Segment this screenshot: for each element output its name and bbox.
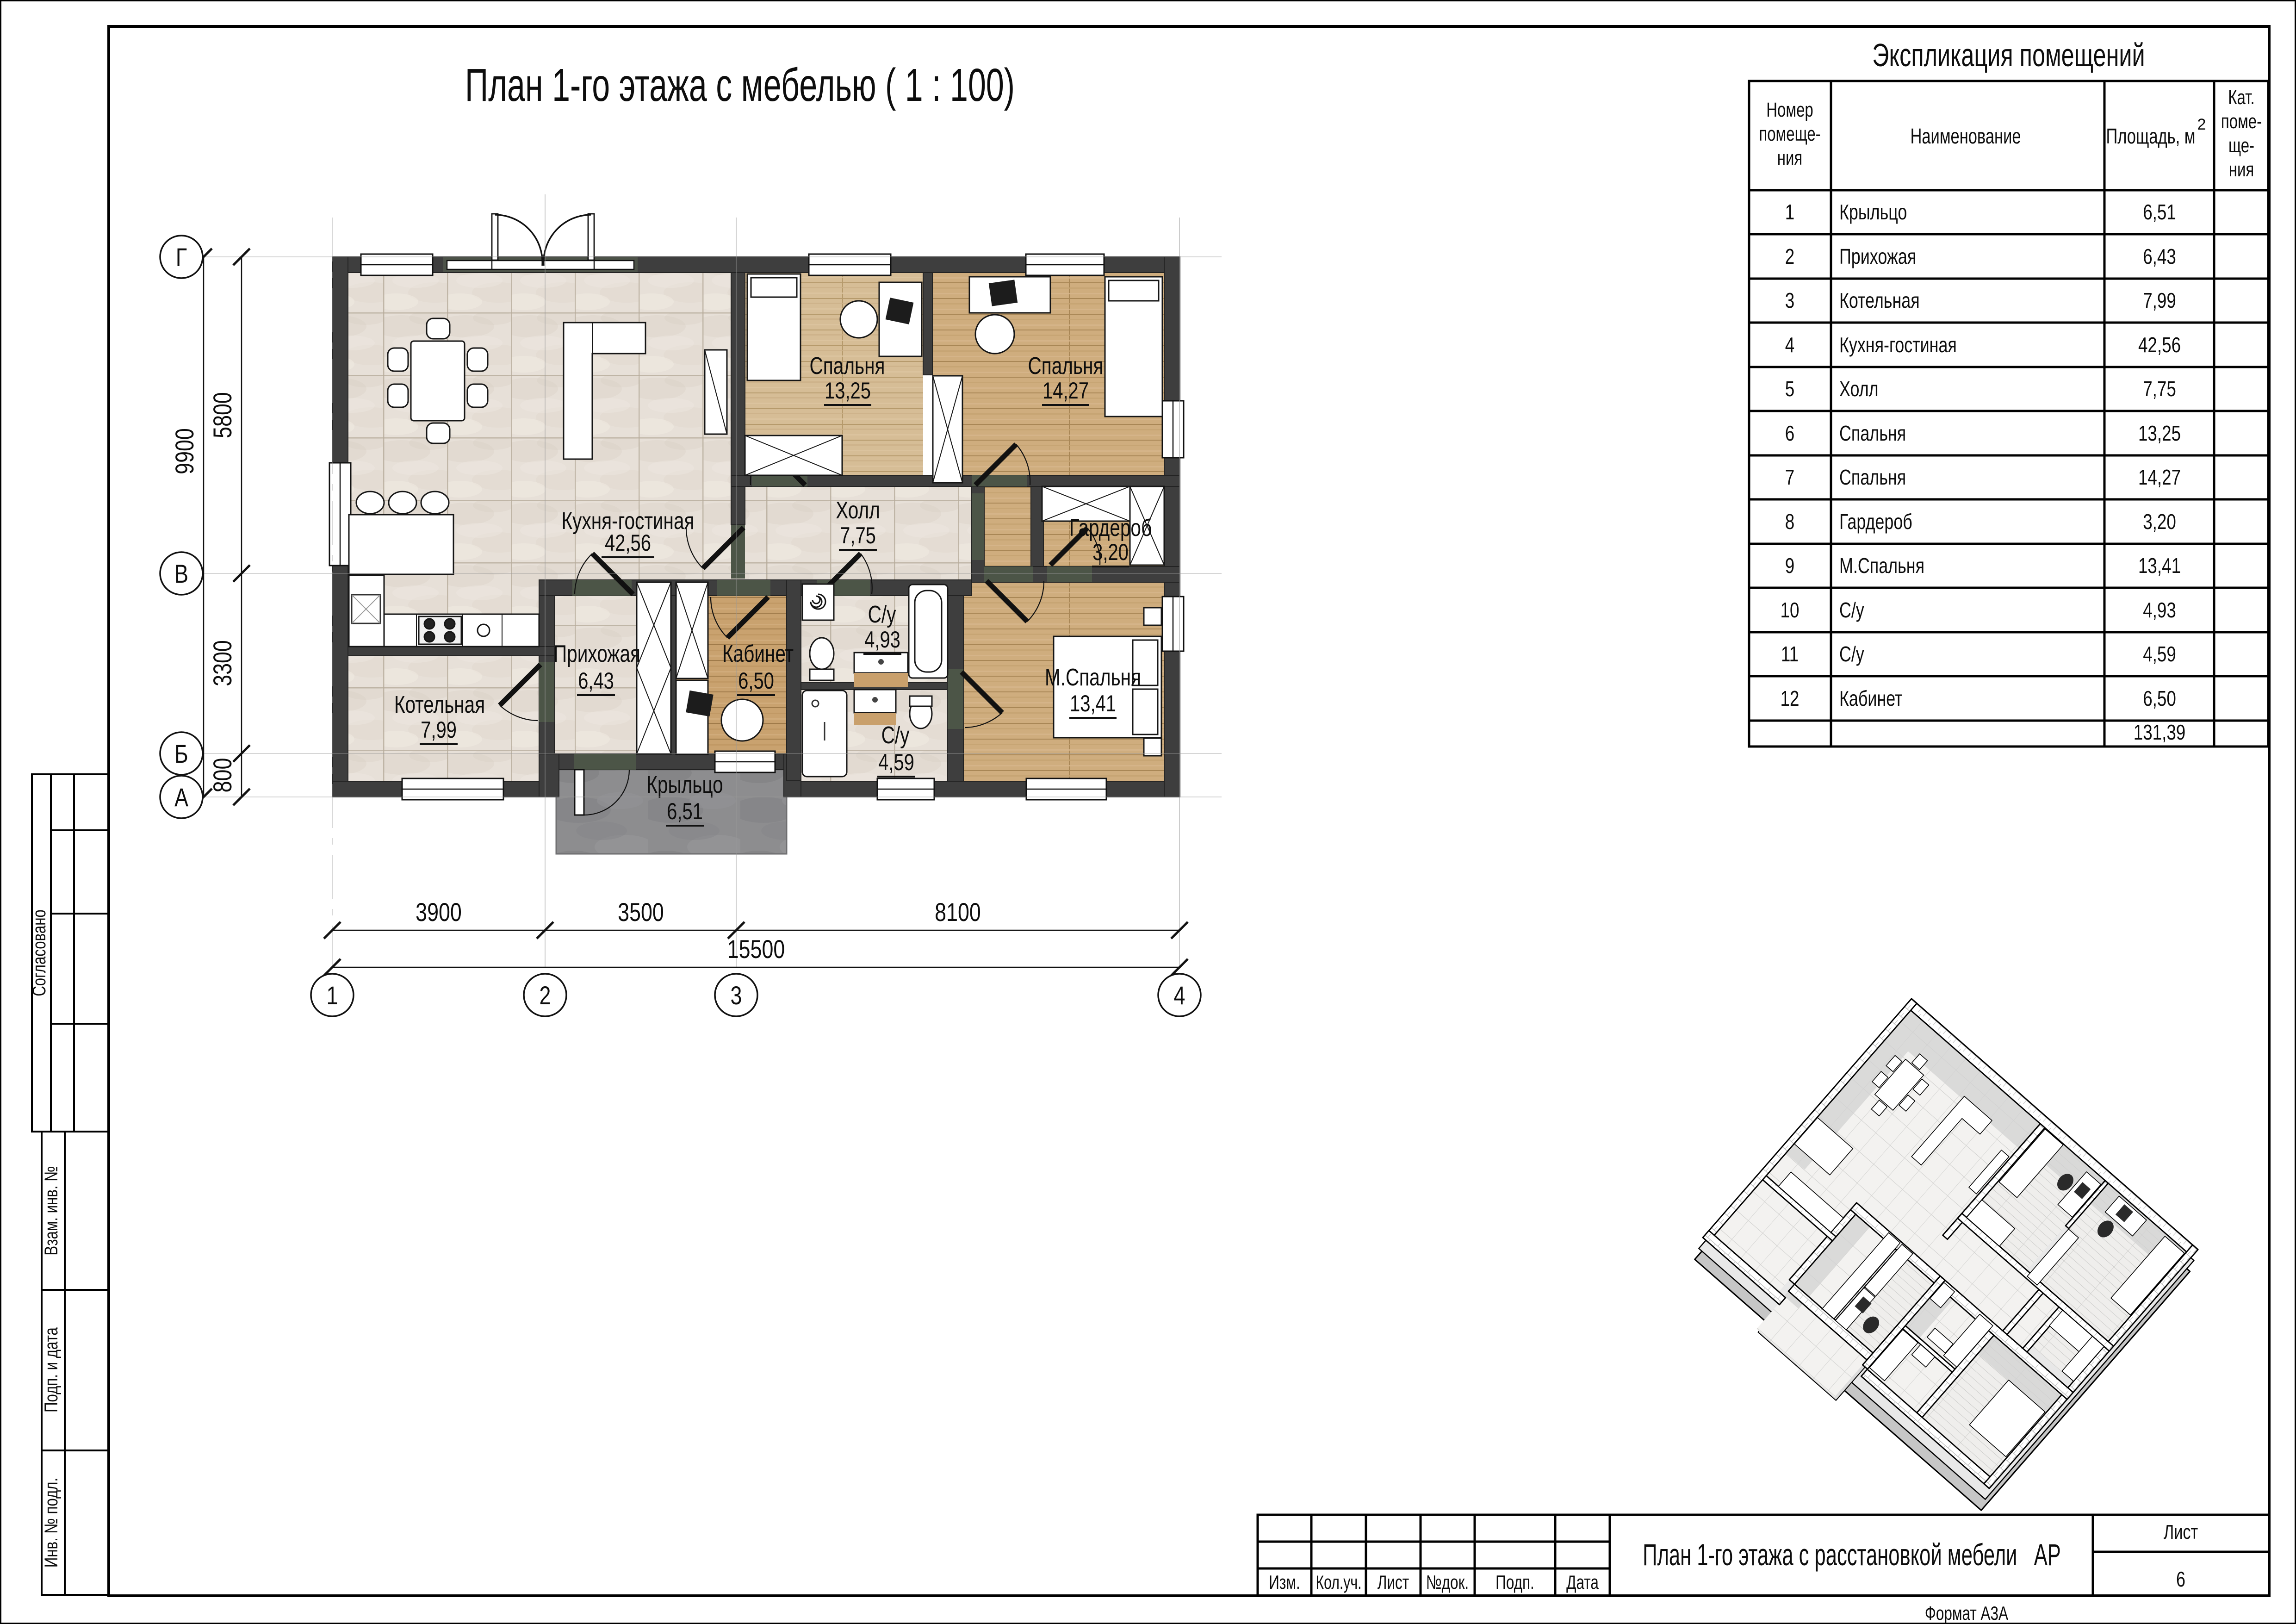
svg-text:7: 7	[1785, 465, 1794, 489]
svg-text:6: 6	[1785, 421, 1794, 445]
svg-text:3900: 3900	[416, 897, 462, 927]
svg-text:Взам. инв. №: Взам. инв. №	[41, 1166, 62, 1255]
svg-text:Кат.: Кат.	[2228, 87, 2254, 109]
svg-text:2: 2	[1785, 244, 1794, 268]
svg-text:6,50: 6,50	[2143, 686, 2176, 710]
svg-text:Лист: Лист	[1378, 1571, 1409, 1593]
svg-text:9900: 9900	[170, 428, 199, 474]
svg-text:Кабинет: Кабинет	[1839, 687, 1903, 710]
svg-text:М.Спальня: М.Спальня	[1839, 554, 1924, 578]
svg-text:Крыльцо: Крыльцо	[646, 771, 723, 798]
svg-text:6,51: 6,51	[2143, 200, 2176, 224]
svg-text:Согласовано: Согласовано	[29, 909, 50, 996]
svg-text:ще-: ще-	[2228, 135, 2254, 157]
svg-text:ния: ния	[1777, 147, 1803, 170]
svg-text:800: 800	[208, 758, 237, 793]
svg-text:С/у: С/у	[881, 722, 910, 748]
svg-text:6,43: 6,43	[578, 668, 614, 694]
svg-text:14,27: 14,27	[2138, 465, 2181, 489]
svg-text:Подп.: Подп.	[1496, 1571, 1534, 1593]
svg-text:Крыльцо: Крыльцо	[1839, 200, 1907, 224]
svg-text:5: 5	[1785, 377, 1794, 401]
svg-text:С/у: С/у	[868, 601, 896, 628]
svg-text:Холл: Холл	[1839, 377, 1879, 401]
svg-text:3,20: 3,20	[1092, 539, 1129, 565]
svg-text:4: 4	[1174, 981, 1185, 1010]
svg-text:6,50: 6,50	[738, 668, 774, 694]
svg-text:Экспликация помещений: Экспликация помещений	[1872, 37, 2145, 73]
svg-text:План 1-го этажа с расстановкой: План 1-го этажа с расстановкой мебели АР	[1643, 1537, 2061, 1572]
svg-text:В: В	[174, 559, 188, 588]
svg-text:2: 2	[540, 981, 551, 1010]
svg-text:42,56: 42,56	[2138, 333, 2181, 357]
svg-text:7,75: 7,75	[840, 523, 876, 548]
svg-text:3300: 3300	[208, 640, 237, 686]
svg-text:Подп. и дата: Подп. и дата	[41, 1327, 62, 1412]
svg-text:10: 10	[1781, 598, 1800, 622]
svg-text:6,43: 6,43	[2143, 244, 2176, 268]
svg-text:М.Спальня: М.Спальня	[1045, 664, 1141, 691]
svg-text:Площадь, м: Площадь, м	[2106, 124, 2196, 148]
svg-text:5800: 5800	[208, 392, 237, 438]
svg-text:2: 2	[2197, 116, 2206, 133]
svg-text:Формат А3А: Формат А3А	[1925, 1602, 2008, 1624]
svg-text:13,25: 13,25	[2138, 421, 2181, 445]
svg-text:Инв. № подл.: Инв. № подл.	[41, 1478, 62, 1568]
svg-text:помеще-: помеще-	[1759, 123, 1820, 146]
svg-text:Котельная: Котельная	[394, 691, 485, 718]
svg-text:Холл: Холл	[836, 497, 880, 523]
svg-text:Кол.уч.: Кол.уч.	[1316, 1571, 1361, 1593]
svg-text:Лист: Лист	[2164, 1521, 2198, 1543]
svg-text:Спальня: Спальня	[1839, 466, 1906, 489]
svg-text:131,39: 131,39	[2134, 720, 2186, 744]
svg-text:4,93: 4,93	[864, 627, 900, 653]
svg-text:3: 3	[1785, 288, 1794, 312]
svg-text:Кабинет: Кабинет	[722, 640, 794, 667]
svg-text:9: 9	[1785, 554, 1794, 578]
svg-text:Гардероб: Гардероб	[1839, 510, 1912, 534]
svg-text:№док.: №док.	[1426, 1571, 1469, 1593]
svg-text:Спальня: Спальня	[1028, 352, 1104, 379]
svg-text:4: 4	[1785, 333, 1794, 357]
svg-text:Прихожая: Прихожая	[553, 640, 640, 667]
svg-text:3500: 3500	[618, 897, 664, 927]
svg-text:6: 6	[2176, 1568, 2185, 1591]
svg-text:1: 1	[327, 981, 338, 1010]
svg-text:15500: 15500	[727, 934, 785, 964]
svg-text:12: 12	[1781, 686, 1800, 710]
svg-text:13,41: 13,41	[1070, 691, 1116, 716]
svg-text:Котельная: Котельная	[1839, 289, 1920, 312]
svg-text:Наименование: Наименование	[1910, 124, 2021, 148]
svg-text:3,20: 3,20	[2143, 510, 2176, 534]
svg-text:А: А	[174, 783, 188, 812]
svg-text:Г: Г	[176, 243, 187, 272]
svg-text:42,56: 42,56	[605, 530, 651, 556]
svg-text:13,25: 13,25	[825, 378, 871, 404]
svg-text:4,59: 4,59	[2143, 642, 2176, 666]
svg-text:Номер: Номер	[1766, 99, 1813, 122]
svg-text:ния: ния	[2229, 159, 2254, 181]
svg-text:8100: 8100	[935, 897, 981, 927]
svg-text:Изм.: Изм.	[1269, 1571, 1300, 1593]
svg-text:13,41: 13,41	[2138, 554, 2181, 578]
svg-text:7,99: 7,99	[421, 717, 457, 743]
svg-text:7,75: 7,75	[2143, 377, 2176, 401]
svg-text:4,93: 4,93	[2143, 598, 2176, 622]
svg-text:8: 8	[1785, 510, 1794, 534]
svg-text:Гардероб: Гардероб	[1069, 514, 1152, 541]
svg-text:План 1-го этажа с мебелью ( 1: План 1-го этажа с мебелью ( 1 : 100)	[465, 60, 1015, 111]
svg-text:11: 11	[1781, 642, 1799, 666]
svg-text:7,99: 7,99	[2143, 288, 2176, 312]
svg-text:6,51: 6,51	[667, 798, 703, 824]
svg-text:Прихожая: Прихожая	[1839, 245, 1916, 268]
svg-text:14,27: 14,27	[1043, 378, 1089, 404]
svg-text:3: 3	[731, 981, 742, 1010]
svg-text:С/у: С/у	[1839, 598, 1864, 622]
svg-text:Кухня-гостиная: Кухня-гостиная	[1839, 333, 1957, 357]
svg-text:Б: Б	[174, 739, 188, 768]
svg-text:поме-: поме-	[2221, 111, 2262, 133]
svg-text:Спальня: Спальня	[810, 352, 885, 379]
svg-text:Дата: Дата	[1566, 1571, 1599, 1593]
svg-text:1: 1	[1785, 200, 1794, 224]
svg-text:С/у: С/у	[1839, 642, 1864, 666]
svg-text:Спальня: Спальня	[1839, 422, 1906, 445]
